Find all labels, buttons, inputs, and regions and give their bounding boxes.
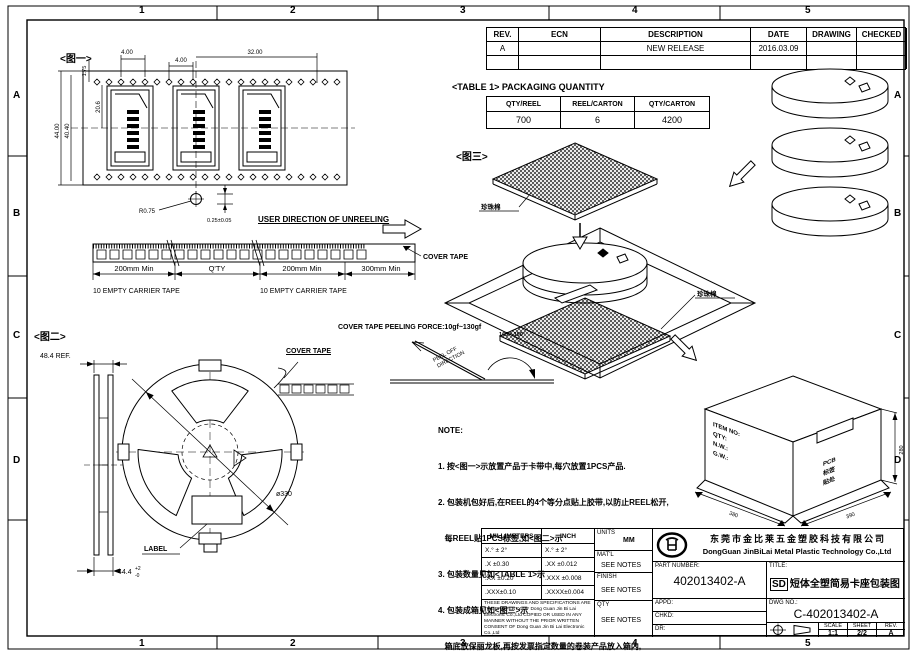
segment-label: 200mm Min (282, 264, 321, 273)
table1-value: 6 (561, 112, 635, 128)
zone-col-label: 2 (290, 638, 296, 649)
tol-cell: .XX ±0.012 (541, 557, 594, 571)
tol-cell: X.° ± 2° (541, 543, 594, 557)
matl-cell: MAT'L SEE NOTES (594, 550, 652, 572)
dwg-no-cell: DWG NO.: C-402013402-A (766, 598, 905, 622)
tol-cell: .XXX±0.10 (482, 585, 541, 599)
tol-col2-header: INCH (541, 529, 594, 543)
sheet-label: SHEET (847, 622, 876, 629)
fig2-reel-drawing: 48.4 REF. 44.4 +2 -0 ø330 LABEL (22, 318, 362, 580)
revision-cell (807, 42, 857, 56)
fig2-cover-tape-label: COVER TAPE (286, 348, 331, 355)
dwg-no-value: C-402013402-A (767, 607, 905, 621)
revision-header: CHECKED (857, 28, 907, 42)
table1-header: QTY/CARTON (635, 97, 709, 112)
matl-value: SEE NOTES (601, 562, 641, 569)
qty-cell: QTY SEE NOTES (594, 600, 652, 637)
tol-cell: X.° ± 2° (482, 543, 541, 557)
company-cell: 东莞市金比莱五金塑胶科技有限公司 DongGuan JinBiLai Metal… (652, 529, 905, 561)
sprocket-holes-bottom (94, 174, 340, 180)
part-number-value: 402013402-A (653, 574, 766, 588)
finish-value: SEE NOTES (601, 587, 641, 594)
foam-pad-bottom (500, 298, 670, 379)
carrier-pockets (97, 250, 366, 259)
zone-col-label: 1 (139, 5, 145, 16)
packaging-quantity-title: <TABLE 1> PACKAGING QUANTITY (452, 82, 605, 92)
matl-label: MAT'L (597, 552, 614, 558)
zone-row-label: C (13, 330, 20, 341)
appd-cell: APPD: (652, 598, 766, 611)
revision-header: DATE (751, 28, 807, 42)
qty-value: SEE NOTES (601, 617, 641, 624)
table1-value: 4200 (635, 112, 709, 128)
tol-cell: .XXXX±0.004 (541, 585, 594, 599)
table1-header: REEL/CARTON (561, 97, 635, 112)
revision-cell (857, 42, 907, 56)
revision-header: ECN (519, 28, 601, 42)
zone-row-label: D (13, 455, 20, 466)
fig1-dim-pitch2: 4.00 (175, 58, 187, 64)
finish-cell: FINISH SEE NOTES (594, 572, 652, 600)
fig1-dim-edge: 1.75 (82, 66, 88, 77)
table1-value: 700 (487, 112, 561, 128)
foam-bottom-label: 珍珠棉 (697, 289, 717, 298)
title-block: MILLIMETERS INCH X.° ± 2° X.° ± 2° .X ±0… (481, 528, 904, 636)
fig2-width-val: 44.4 (118, 569, 132, 576)
fig1-dim-pitch1: 4.00 (121, 50, 133, 56)
reel-label-text: LABEL (144, 546, 168, 553)
fig2-width-tol-minus: -0 (135, 573, 140, 579)
note-line: 2. 包装机包好后,在REEL的4个等分点贴上胶带,以防止REEL松开, (438, 497, 738, 509)
scale-label: SCALE (818, 622, 847, 629)
tol-cell: .XXX ±0.008 (541, 571, 594, 585)
rev-label: REV. (876, 622, 905, 629)
revision-cell (487, 56, 519, 69)
zone-col-label: 2 (290, 5, 296, 16)
title-cell: TITLE: SD 短体全塑简易卡座包装图 (766, 561, 905, 598)
foam-top-label: 珍珠棉 (481, 202, 501, 211)
carton-dim-height: 280 (899, 445, 905, 454)
revision-cell: A (487, 42, 519, 56)
drawing-sheet: { "border": {"cols": ["1","2","3","4","5… (0, 0, 915, 655)
fig1-dim-width: 44.00 (55, 123, 61, 139)
table1-header: QTY/REEL (487, 97, 561, 112)
finish-label: FINISH (597, 574, 617, 580)
sprocket-holes-top (94, 79, 340, 85)
note-title: NOTE: (438, 425, 738, 437)
fig1-dim-inner: 40.40 (65, 123, 71, 139)
dwg-no-label: DWG NO.: (769, 600, 798, 606)
zone-col-label: 3 (460, 5, 466, 16)
scale-value: 1:1 (818, 629, 847, 637)
part-number-label: PART NUMBER: (655, 563, 700, 569)
reel-label-area (192, 496, 242, 524)
packaging-quantity-table: QTY/REEL REEL/CARTON QTY/CARTON 700 6 42… (486, 96, 710, 129)
tol-cell: .XX ±0.20 (482, 571, 541, 585)
company-name-en: DongGuan JinBiLai Metal Plastic Technolo… (689, 547, 905, 556)
revision-header: DESCRIPTION (601, 28, 751, 42)
units-cell: UNITS MM (594, 529, 652, 550)
empty-carrier-label-right: 10 EMPTY CARRIER TAPE (260, 288, 347, 295)
zone-col-label: 1 (139, 638, 145, 649)
appd-label: APPD: (655, 600, 673, 606)
stacked-reels-drawing (755, 60, 910, 250)
zone-col-label: 5 (805, 638, 811, 649)
revision-cell (601, 56, 751, 69)
tol-col1-header: MILLIMETERS (482, 529, 541, 543)
zone-col-label: 5 (805, 5, 811, 16)
fig2-width-tol-plus: +2 (135, 566, 141, 572)
fig2-diameter: ø330 (276, 491, 292, 498)
chkd-label: CHKD: (655, 613, 674, 619)
revision-header: DRAWING (807, 28, 857, 42)
sheet-value: 2/2 (847, 629, 876, 637)
units-label: UNITS (597, 530, 615, 536)
unreeling-drawing: 200mm Min Q'TY 200mm Min 300mm Min 10 EM… (85, 212, 457, 307)
title-label: TITLE: (769, 563, 787, 569)
carton-side-markings: PCB 标签 贴处 (822, 456, 836, 487)
qty-label: QTY (597, 602, 609, 608)
flow-arrow-in (725, 158, 758, 191)
empty-carrier-label-left: 10 EMPTY CARRIER TAPE (93, 288, 180, 295)
fig2-width-ref: 48.4 REF. (40, 353, 71, 360)
revision-cell (519, 56, 601, 69)
drawing-title-prefix: SD (770, 578, 788, 591)
segment-label: Q'TY (209, 264, 226, 273)
revision-header: REV. (487, 28, 519, 42)
chkd-cell: CHKD: (652, 611, 766, 624)
part-number-cell: PART NUMBER: 402013402-A (652, 561, 766, 598)
fig1-carrier-tape-drawing: 4.00 4.00 32.00 44.00 40.40 20.6 1.75 R0… (55, 35, 365, 230)
fig1-dim-half: 20.6 (96, 101, 102, 113)
note-line: 箱底放保丽龙板,再按发票指定数量的卷装产品放入箱内, (438, 641, 738, 653)
units-value: MM (623, 537, 635, 544)
revision-cell: 2016.03.09 (751, 42, 807, 56)
tol-cell: .X ±0.30 (482, 557, 541, 571)
unreel-direction-arrow (383, 220, 421, 238)
segment-label: 200mm Min (114, 264, 153, 273)
third-angle-projection-icon (768, 623, 818, 637)
dr-cell: DR: (652, 624, 766, 637)
zone-row-label: B (13, 208, 20, 219)
segment-label: 300mm Min (361, 264, 400, 273)
revision-cell (519, 42, 601, 56)
foam-pad-top (493, 143, 657, 220)
revision-cell: NEW RELEASE (601, 42, 751, 56)
zone-col-label: 4 (632, 5, 638, 16)
carton-dim-right: 390 (845, 512, 856, 521)
company-logo (655, 530, 691, 560)
drawing-title: 短体全塑简易卡座包装图 (790, 579, 900, 590)
zone-row-label: C (894, 330, 901, 341)
company-name-cn: 东莞市金比莱五金塑胶科技有限公司 (693, 532, 903, 545)
dr-label: DR: (655, 626, 665, 632)
legal-text: THESE DRAWINGS AND SPECIFICATIONS ARE TH… (482, 599, 594, 637)
projection-cell (766, 622, 818, 637)
fig1-dim-span: 32.00 (247, 50, 263, 56)
zone-row-label: A (13, 90, 20, 101)
note-line: 1. 按<图一>示放置产品于卡带中,每穴放置1PCS产品. (438, 461, 738, 473)
rev-value: A (876, 629, 905, 637)
